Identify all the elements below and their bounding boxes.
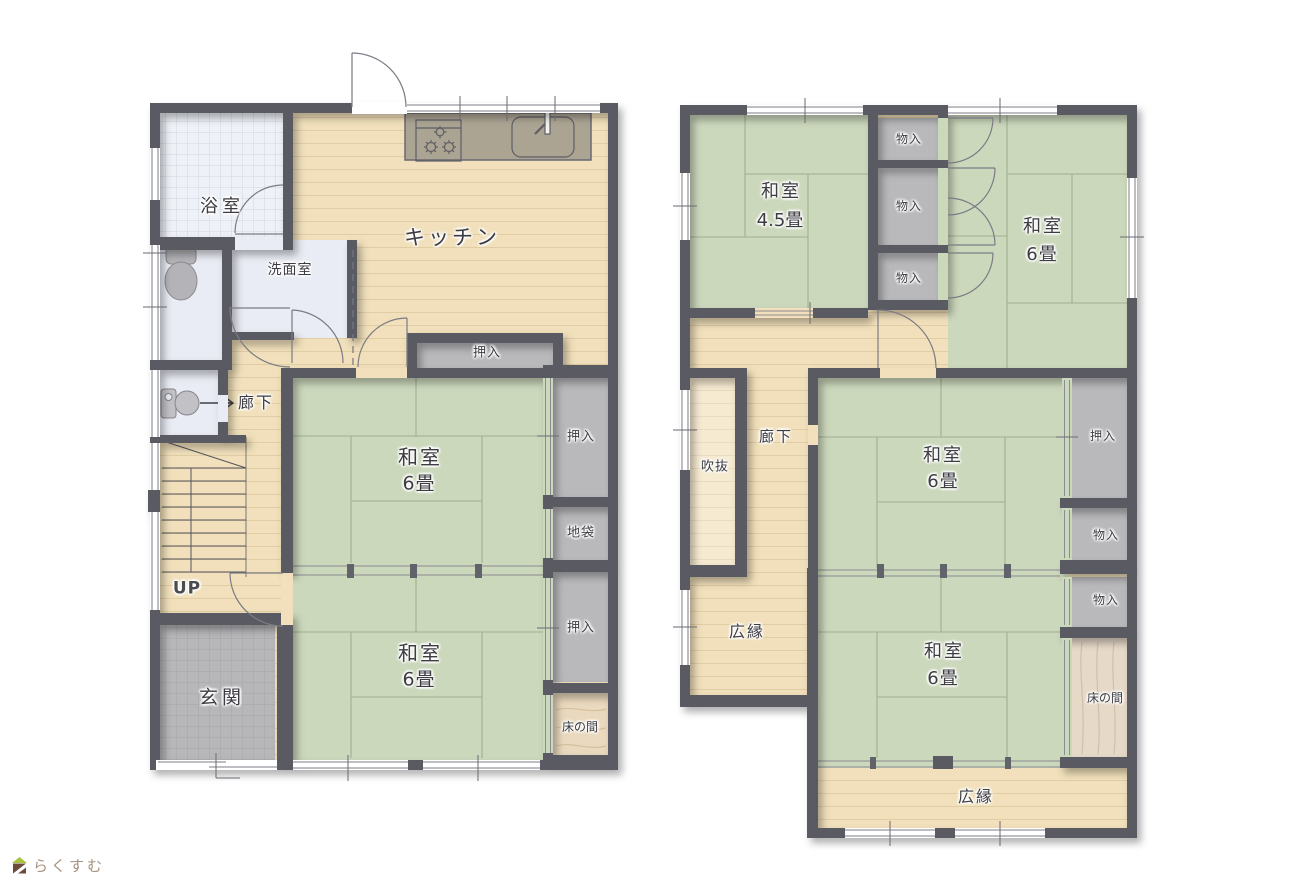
floor1-plan [143, 53, 618, 781]
room-label-void: 吹抜 [701, 461, 729, 474]
room-label-tatami6a-name: 和室 [1023, 218, 1063, 236]
room-label-closet-2f: 押入 [1090, 430, 1116, 442]
room-label-storage4: 物入 [1093, 529, 1119, 541]
kitchen-counter [405, 110, 591, 161]
tatami-rooms-floor [293, 378, 543, 760]
room-label-kitchen: キッチン [404, 228, 500, 249]
brand-logo: らくすむ [12, 855, 105, 876]
room-label-tatami45-name: 和室 [761, 183, 801, 201]
room-label-tatami6b-name: 和室 [923, 447, 963, 465]
room-label-closet-east2: 押入 [567, 622, 595, 635]
toilet-icon-a [165, 247, 197, 300]
room-label-tatami1-name: 和室 [398, 447, 442, 467]
room-label-hallway-2f: 廊下 [759, 430, 793, 445]
room-label-tatami45-size: 4.5畳 [757, 212, 804, 230]
room-label-bath: 浴室 [200, 198, 244, 216]
stairs-up-label: UP [173, 581, 201, 598]
room-label-alcove-2f: 床の間 [1087, 692, 1123, 704]
room-label-tatami6c-size: 6畳 [927, 670, 958, 688]
tatami-6a-floor [948, 113, 1127, 368]
room-label-storage1: 物入 [896, 133, 922, 145]
room-label-tatami6a-size: 6畳 [1026, 246, 1057, 264]
room-label-tatami6b-size: 6畳 [927, 473, 958, 491]
room-label-storage3: 物入 [896, 272, 922, 284]
floorplan-page: 浴室 洗面室 キッチン 押入 廊下 和室 6畳 押入 地袋 押入 床の間 UP … [0, 0, 1297, 879]
logo-text: らくすむ [33, 855, 105, 876]
room-label-entrance: 玄関 [199, 689, 245, 708]
washroom-floor [222, 240, 347, 338]
room-label-tatami2-name: 和室 [398, 643, 442, 663]
room-label-hallway-1f: 廊下 [238, 395, 274, 411]
room-label-closet-east1: 押入 [567, 431, 595, 444]
bathroom-floor [160, 113, 283, 237]
room-label-veranda-south: 広縁 [958, 789, 994, 805]
room-label-veranda-west: 広縁 [729, 624, 765, 640]
room-label-alcove-1f: 床の間 [562, 721, 598, 733]
room-label-tatami6c-name: 和室 [924, 643, 964, 661]
room-label-washroom: 洗面室 [268, 263, 313, 277]
logo-house-icon [12, 857, 27, 874]
room-label-floor-chest: 地袋 [567, 527, 595, 540]
room-label-closet-upper: 押入 [473, 347, 501, 360]
room-label-tatami2-size: 6畳 [402, 671, 435, 690]
room-label-storage5: 物入 [1093, 594, 1119, 606]
room-label-tatami1-size: 6畳 [402, 475, 435, 494]
room-label-storage2: 物入 [896, 200, 922, 212]
